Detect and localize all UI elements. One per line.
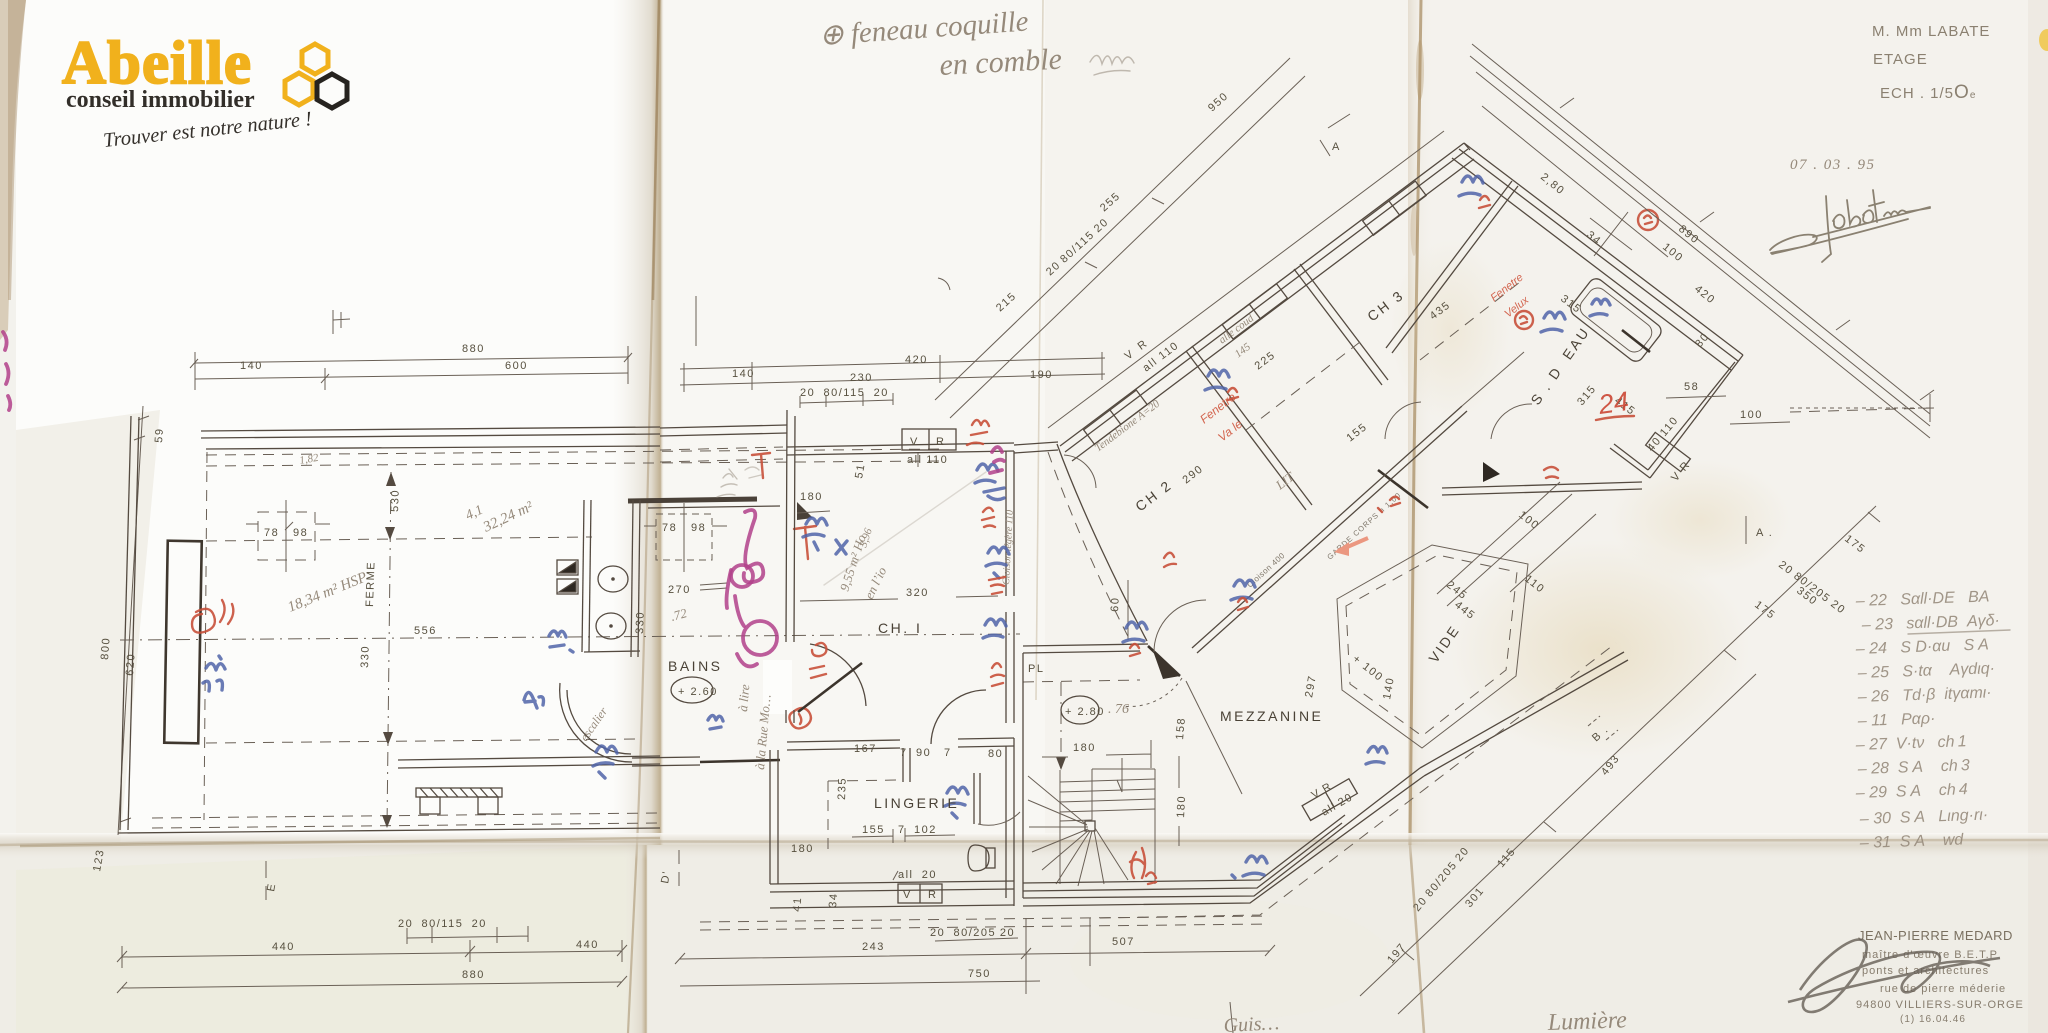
svg-text:60: 60 bbox=[1109, 596, 1122, 612]
svg-text:CH. I: CH. I bbox=[878, 620, 922, 636]
svg-text:7: 7 bbox=[944, 747, 952, 759]
svg-text:ETAGE: ETAGE bbox=[1873, 51, 1928, 68]
svg-text:D': D' bbox=[659, 870, 673, 885]
svg-text:158: 158 bbox=[1174, 716, 1188, 740]
svg-text:BAINS: BAINS bbox=[668, 658, 723, 674]
svg-text:78: 78 bbox=[662, 522, 677, 534]
svg-text:07 . 03 . 95: 07 . 03 . 95 bbox=[1790, 157, 1876, 173]
svg-text:– 11 Pαρ·: – 11 Pαρ· bbox=[1857, 710, 1936, 730]
svg-text:all 110: all 110 bbox=[907, 454, 948, 466]
svg-text:98: 98 bbox=[691, 522, 706, 534]
svg-text:600: 600 bbox=[505, 360, 528, 372]
svg-text:all 20: all 20 bbox=[898, 869, 937, 881]
svg-text:7: 7 bbox=[900, 747, 908, 759]
svg-text:34: 34 bbox=[827, 892, 840, 908]
svg-text:A .: A . bbox=[1756, 527, 1773, 539]
svg-text:R: R bbox=[928, 889, 937, 901]
svg-text:à lire: à lire bbox=[735, 684, 752, 713]
svg-text:180: 180 bbox=[791, 843, 814, 855]
svg-text:167: 167 bbox=[854, 743, 877, 755]
svg-text:330: 330 bbox=[634, 611, 647, 634]
svg-text:556: 556 bbox=[414, 625, 437, 637]
svg-text:58: 58 bbox=[1684, 381, 1699, 393]
svg-text:90: 90 bbox=[916, 747, 931, 759]
svg-text:A: A bbox=[1332, 141, 1341, 153]
svg-text:180: 180 bbox=[1073, 742, 1096, 754]
svg-text:rue de pierre méderie: rue de pierre méderie bbox=[1880, 983, 2006, 995]
svg-text:V: V bbox=[910, 436, 919, 448]
svg-text:98: 98 bbox=[293, 527, 308, 539]
svg-text:155: 155 bbox=[862, 824, 885, 836]
svg-text:conseil immobilier: conseil immobilier bbox=[66, 87, 255, 113]
svg-text:78: 78 bbox=[264, 527, 279, 539]
svg-text:Guis…: Guis… bbox=[1223, 1012, 1280, 1033]
svg-text:230: 230 bbox=[850, 372, 873, 384]
svg-text:MEZZANINE: MEZZANINE bbox=[1220, 708, 1323, 724]
svg-text:440: 440 bbox=[576, 939, 599, 951]
svg-text:235: 235 bbox=[836, 777, 849, 800]
svg-text:ECH . 1/5Oe: ECH . 1/5Oe bbox=[1880, 82, 1976, 103]
svg-text:750: 750 bbox=[968, 968, 991, 980]
svg-text:102: 102 bbox=[914, 824, 937, 836]
svg-text:507: 507 bbox=[1112, 936, 1135, 948]
svg-text:41: 41 bbox=[791, 896, 804, 912]
svg-text:270: 270 bbox=[668, 584, 691, 596]
svg-text:LINGERIE: LINGERIE bbox=[874, 795, 959, 811]
svg-text:100: 100 bbox=[1740, 409, 1763, 421]
svg-text:+ 2.60: + 2.60 bbox=[678, 686, 718, 698]
svg-text:+ 2.80: + 2.80 bbox=[1065, 706, 1105, 718]
svg-text:59: 59 bbox=[153, 427, 166, 443]
svg-text:180: 180 bbox=[800, 491, 823, 503]
svg-text:24: 24 bbox=[1596, 386, 1631, 420]
svg-text:880: 880 bbox=[462, 969, 485, 981]
svg-text:330: 330 bbox=[359, 645, 372, 668]
svg-text:180: 180 bbox=[1175, 795, 1188, 818]
svg-text:140: 140 bbox=[732, 368, 755, 380]
svg-text:PL: PL bbox=[1028, 663, 1044, 675]
svg-text:20 80/115 20: 20 80/115 20 bbox=[398, 918, 487, 930]
svg-text:190: 190 bbox=[1030, 369, 1053, 381]
svg-text:. 76: . 76 bbox=[1108, 702, 1129, 717]
svg-text:94800 VILLIERS-SUR-ORGE: 94800 VILLIERS-SUR-ORGE bbox=[1856, 999, 2024, 1011]
svg-text:M. Mm LABATE: M. Mm LABATE bbox=[1872, 23, 1990, 40]
svg-text:Lumière: Lumière bbox=[1546, 1007, 1627, 1033]
svg-text:320: 320 bbox=[906, 587, 929, 599]
svg-text:(1) 16.04.46: (1) 16.04.46 bbox=[1900, 1014, 1966, 1025]
svg-text:880: 880 bbox=[462, 343, 485, 355]
svg-text:JEAN-PIERRE MEDARD: JEAN-PIERRE MEDARD bbox=[1858, 928, 2013, 943]
svg-text:R: R bbox=[936, 436, 945, 448]
svg-text:80: 80 bbox=[988, 748, 1003, 760]
svg-text:20 80/205 20: 20 80/205 20 bbox=[930, 927, 1015, 939]
svg-text:440: 440 bbox=[272, 941, 295, 953]
svg-text:20 80/115 20: 20 80/115 20 bbox=[800, 387, 889, 399]
svg-text:7: 7 bbox=[898, 824, 906, 836]
svg-text:V: V bbox=[903, 889, 912, 901]
svg-text:800: 800 bbox=[99, 637, 113, 661]
svg-text:140: 140 bbox=[240, 360, 263, 372]
svg-text:243: 243 bbox=[862, 941, 885, 953]
svg-text:530: 530 bbox=[389, 489, 402, 512]
svg-text:en comble: en comble bbox=[939, 43, 1063, 82]
svg-text:620: 620 bbox=[124, 653, 138, 677]
svg-text:420: 420 bbox=[905, 354, 928, 366]
